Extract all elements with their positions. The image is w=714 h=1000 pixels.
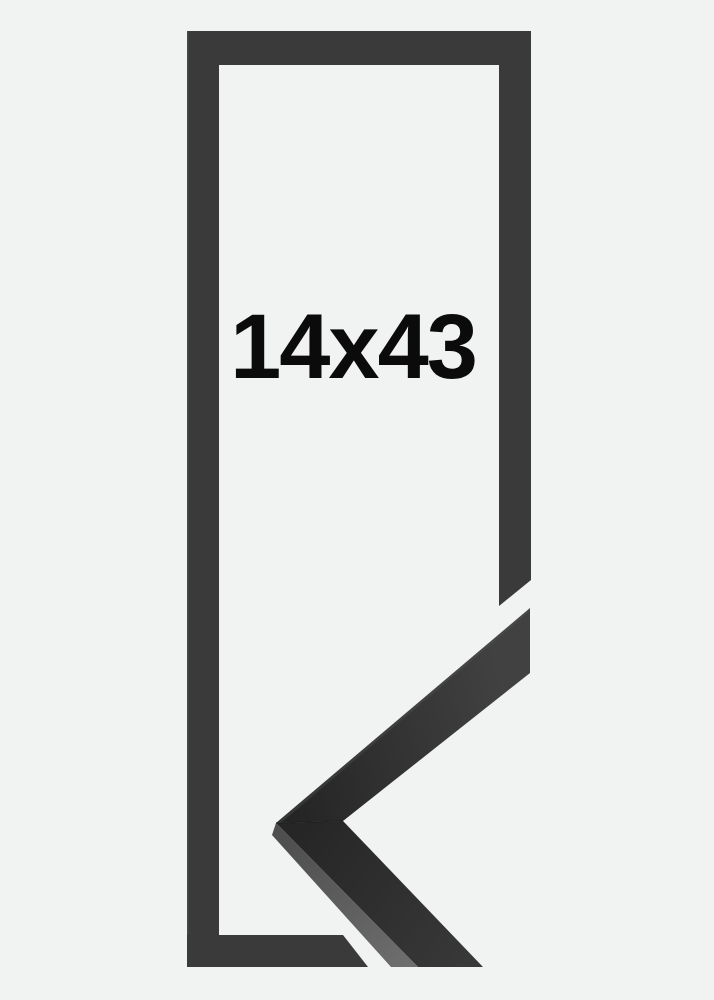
product-image: 14x43: [0, 0, 714, 1000]
frame-bottom-bar: [187, 935, 368, 967]
frame-top-bar: [187, 31, 531, 65]
frame-left-bar: [187, 31, 219, 967]
frame-right-bar: [499, 31, 531, 606]
frame-mockup-graphic: 14x43: [0, 0, 714, 1000]
frame-left-edge-highlight: [187, 31, 189, 967]
size-label: 14x43: [230, 296, 476, 398]
